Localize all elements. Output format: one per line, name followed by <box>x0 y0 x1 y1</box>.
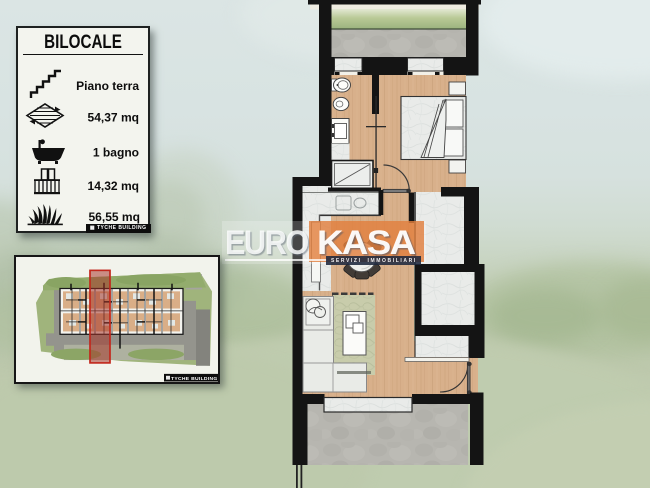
svg-text:1 bagno: 1 bagno <box>93 145 139 159</box>
svg-text:54,37 mq: 54,37 mq <box>88 110 140 124</box>
svg-text:14,32 mq: 14,32 mq <box>88 179 140 193</box>
svg-text:56,55 mq: 56,55 mq <box>88 210 140 224</box>
svg-text:Piano terra: Piano terra <box>76 79 139 93</box>
svg-text:TYCHE BUILDING: TYCHE BUILDING <box>171 376 218 382</box>
